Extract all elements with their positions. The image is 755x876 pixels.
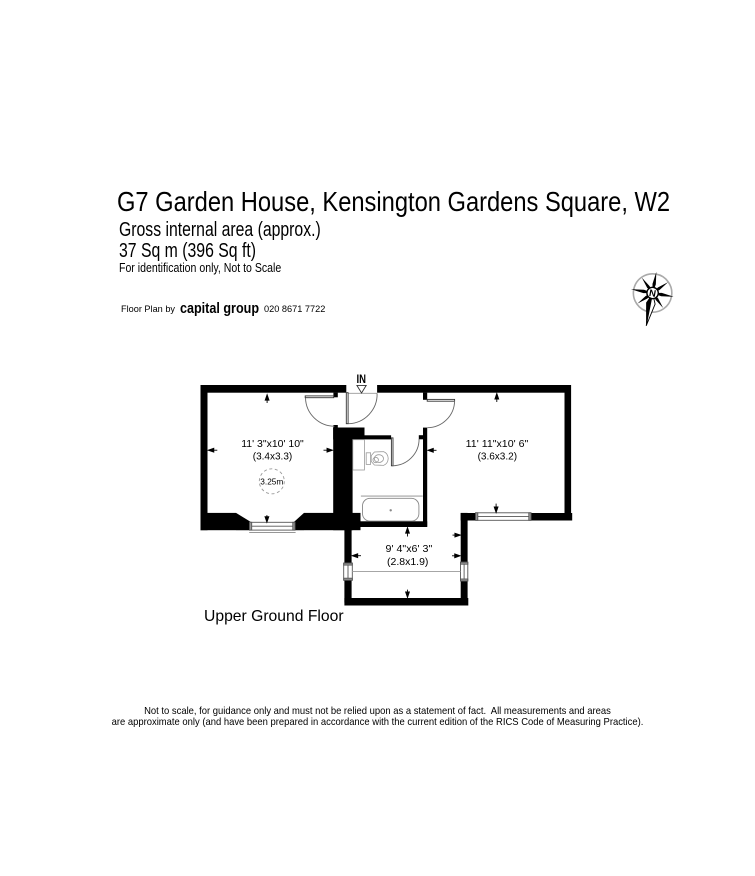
svg-text:(2.8x1.9): (2.8x1.9) — [387, 557, 428, 568]
svg-text:11' 11"x10' 6": 11' 11"x10' 6" — [466, 439, 529, 450]
svg-text:9' 4"x6' 3": 9' 4"x6' 3" — [386, 544, 433, 555]
svg-text:3.25m: 3.25m — [260, 478, 283, 487]
svg-text:(3.6x3.2): (3.6x3.2) — [478, 451, 517, 462]
svg-text:IN: IN — [356, 372, 366, 386]
svg-text:(3.4x3.3): (3.4x3.3) — [253, 452, 292, 463]
svg-text:11' 3"x10' 10": 11' 3"x10' 10" — [241, 439, 304, 450]
